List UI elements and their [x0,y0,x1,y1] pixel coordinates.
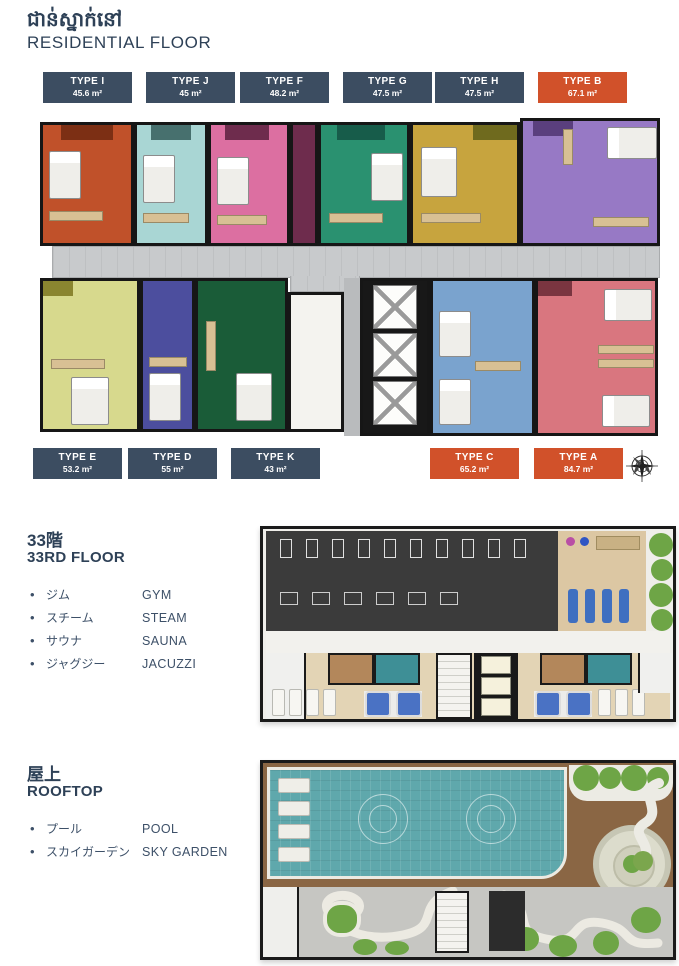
pool-loungers [270,778,564,862]
sauna-right [540,653,586,685]
amenity-en: SKY GARDEN [142,845,250,859]
spa-band [266,653,670,719]
compass-icon [624,448,660,484]
desk [598,345,654,354]
badge-area-label: 55 m² [161,464,183,475]
rooftop-plan [260,760,676,960]
sauna-left [328,653,374,685]
unit-type-f [208,122,290,246]
dresser [421,213,481,223]
restrooms [263,887,299,957]
unit-type-h [410,122,520,246]
floor33-title-en: 33RD FLOOR [27,549,125,566]
bed [602,395,650,427]
bush [549,935,577,957]
badge-type-label: TYPE B [563,76,602,89]
unit-bath-zone [538,281,572,296]
wardrobe [563,129,573,165]
badge-type-f: TYPE F 48.2 m² [240,72,329,103]
badge-type-label: TYPE I [70,76,104,89]
unit-type-g [318,122,410,246]
badge-type-label: TYPE G [368,76,407,89]
bed [439,311,471,357]
elevator-cab [481,698,511,716]
bullet: • [30,844,46,859]
jacuzzi-right [534,691,592,717]
paved-garden [263,887,673,957]
floor33-plan [260,526,676,722]
elevator-core-33f [474,653,518,719]
counter [596,536,640,550]
counter [206,321,216,371]
decor-dot [580,537,589,546]
residential-floor-plan [38,118,662,440]
dresser [149,357,187,367]
bed [143,155,175,203]
badge-area-label: 48.2 m² [270,88,299,99]
stair-core-roof [435,891,469,953]
elevator-cab [481,656,511,674]
bed [607,127,657,159]
bed [71,377,109,425]
spa-loungers-left [272,689,336,716]
unit-bath-zone [43,281,73,296]
badge-type-i: TYPE I 45.6 m² [43,72,132,103]
machine-room [489,891,525,951]
bush [631,907,661,933]
badge-type-label: TYPE H [460,76,499,89]
steam-room-right [586,653,632,685]
badge-type-label: TYPE D [153,452,192,465]
elevator-cab [481,677,511,695]
relax-loungers [568,589,629,623]
gym-equipment [266,531,558,558]
bed [604,289,652,321]
washrooms-right [638,653,672,693]
badge-area-label: 65.2 m² [460,464,489,475]
amenity-sauna: • サウナ SAUNA [30,632,240,649]
pool-ripple [358,794,408,844]
elevator-cab [373,381,417,425]
badge-area-label: 43 m² [264,464,286,475]
bullet: • [30,633,46,648]
amenity-jp: スチーム [46,609,142,626]
bullet: • [30,821,46,836]
amenity-gym: • ジム GYM [30,586,240,603]
badge-area-label: 47.5 m² [373,88,402,99]
badge-area-label: 47.5 m² [465,88,494,99]
desk [598,359,654,368]
unit-type-k [195,278,288,432]
tree [651,559,673,581]
steam-room-left [374,653,420,685]
brochure-page: ជាន់ស្នាក់នៅ RESIDENTIAL FLOOR TYPE I 45… [0,0,679,966]
spa-loungers-right [598,689,645,716]
amenity-steam: • スチーム STEAM [30,609,240,626]
garden-island [323,901,361,937]
badge-type-label: TYPE J [172,76,209,89]
gym-area [266,531,558,631]
badge-type-label: TYPE E [59,452,97,465]
bed [149,373,181,421]
dresser [593,217,649,227]
unit-upper-zone [337,125,385,140]
dining-table [475,361,521,371]
badge-type-e: TYPE E 53.2 m² [33,448,122,479]
badge-type-g: TYPE G 47.5 m² [343,72,432,103]
pool-ripple [466,794,516,844]
badge-type-label: TYPE F [266,76,303,89]
bed [421,147,457,197]
unit-upper-zone [151,125,191,140]
badge-type-a: TYPE A 84.7 m² [534,448,623,479]
elevator-cab [373,333,417,377]
corridor-33f [266,631,670,653]
unit-type-c [430,278,535,436]
unit-type-a [535,278,658,436]
amenity-en: SAUNA [142,634,240,648]
elevator-cab [373,285,417,329]
core-corridor [344,278,360,436]
bullet: • [30,587,46,602]
badge-area-label: 67.1 m² [568,88,597,99]
badge-area-label: 84.7 m² [564,464,593,475]
unit-type-e [40,278,140,432]
amenity-jp: ジャグジー [46,655,142,672]
dresser [143,213,189,223]
unit-type-i [40,122,134,246]
unit-type-j [134,122,208,246]
bed [217,157,249,205]
decor-dot [566,537,575,546]
bed [49,151,81,199]
page-title-khmer: ជាន់ស្នាក់នៅ [27,6,122,36]
relaxation-room [558,531,646,631]
tree [649,583,673,607]
bed [371,153,403,201]
amenity-jp: サウナ [46,632,142,649]
amenity-en: GYM [142,588,240,602]
amenity-jp: プール [46,820,142,837]
rooftop-title-en: ROOFTOP [27,783,103,800]
badge-type-h: TYPE H 47.5 m² [435,72,524,103]
amenity-en: POOL [142,822,250,836]
badge-type-label: TYPE A [559,452,597,465]
tree [649,533,673,557]
pool [267,767,567,879]
unit-type-b [520,118,660,246]
amenity-jacuzzi: • ジャグジー JACUZZI [30,655,240,672]
bullet: • [30,656,46,671]
unit-inner-bath [290,122,318,246]
rooftop-title-jp: 屋上 [27,760,61,785]
amenity-jp: スカイガーデン [46,843,142,860]
amenity-sky-garden: • スカイガーデン SKY GARDEN [30,843,250,860]
bed [439,379,471,425]
badge-type-b: TYPE B 67.1 m² [538,72,627,103]
bush [385,941,409,955]
badge-type-label: TYPE C [455,452,494,465]
page-title: RESIDENTIAL FLOOR [27,33,211,53]
amenity-en: STEAM [142,611,240,625]
stair-core [288,292,344,432]
winding-path [615,777,671,873]
dresser [49,211,103,221]
jacuzzi-left [364,691,422,717]
badge-area-label: 53.2 m² [63,464,92,475]
badge-area-label: 45 m² [179,88,201,99]
bush [593,931,619,955]
badge-area-label: 45.6 m² [73,88,102,99]
dresser [51,359,105,369]
dresser [329,213,383,223]
unit-upper-zone [473,125,517,140]
shrub [573,765,599,791]
amenity-en: JACUZZI [142,657,240,671]
badge-type-k: TYPE K 43 m² [231,448,320,479]
dresser [217,215,267,225]
badge-type-j: TYPE J 45 m² [146,72,235,103]
badge-type-c: TYPE C 65.2 m² [430,448,519,479]
unit-upper-zone [61,125,113,140]
bed [236,373,272,421]
badge-type-label: TYPE K [256,452,295,465]
gym-equipment [266,584,558,605]
amenity-jp: ジム [46,586,142,603]
unit-type-d [140,278,195,432]
unit-upper-zone [225,125,269,140]
bullet: • [30,610,46,625]
floor33-title-jp: 33階 [27,526,63,551]
amenity-pool: • プール POOL [30,820,250,837]
corridor [52,246,660,278]
bush [353,939,377,955]
badge-type-d: TYPE D 55 m² [128,448,217,479]
tree [651,609,673,631]
elevator-core [360,278,430,436]
stair-core-33f [436,653,472,719]
